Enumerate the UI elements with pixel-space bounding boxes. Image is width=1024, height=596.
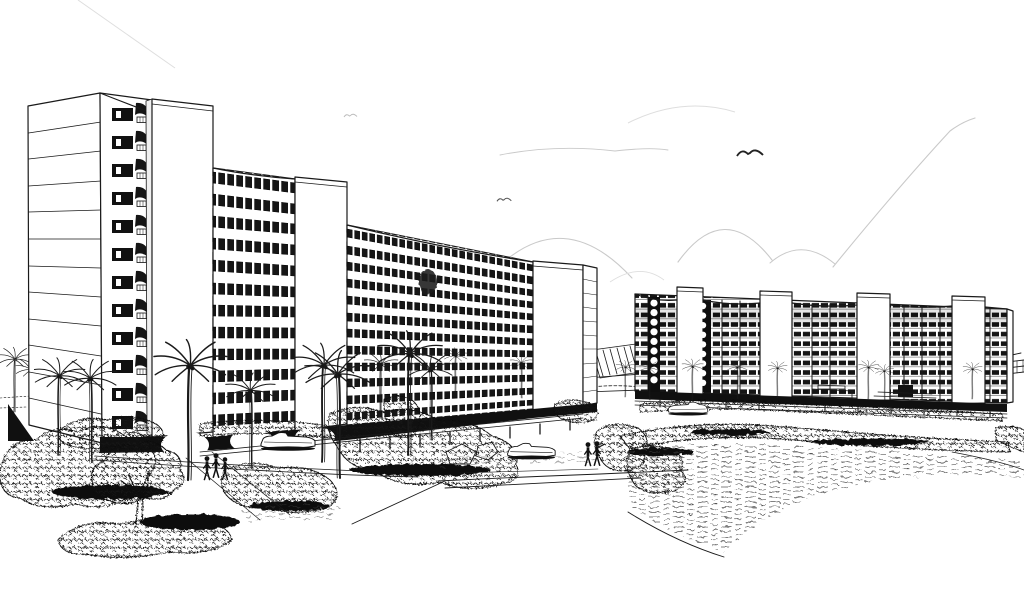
tower-core [952, 296, 985, 404]
wing-end-bay [583, 265, 597, 406]
tower-core [760, 291, 792, 398]
facade-smudge [419, 269, 437, 295]
facade-segment [347, 225, 533, 425]
balcony-bay-face [100, 93, 152, 443]
distant-shore-marks [0, 396, 30, 408]
shrub-cluster [554, 400, 598, 423]
car [508, 443, 556, 459]
tower-core [677, 287, 703, 396]
facade-segment [213, 168, 295, 437]
bird-icon [737, 150, 763, 156]
bird-icon [344, 114, 357, 117]
sketch-canvas [0, 0, 1024, 596]
wing-end-bay [1007, 309, 1013, 403]
road-edge [352, 481, 445, 524]
bird-icon [497, 198, 511, 201]
palm-tree [616, 360, 635, 397]
tower-core [533, 261, 583, 412]
architectural-sketch: Black-and-white architectural perspectiv… [0, 0, 1024, 596]
right-wing-building [635, 287, 1013, 418]
tower-core [146, 99, 213, 437]
